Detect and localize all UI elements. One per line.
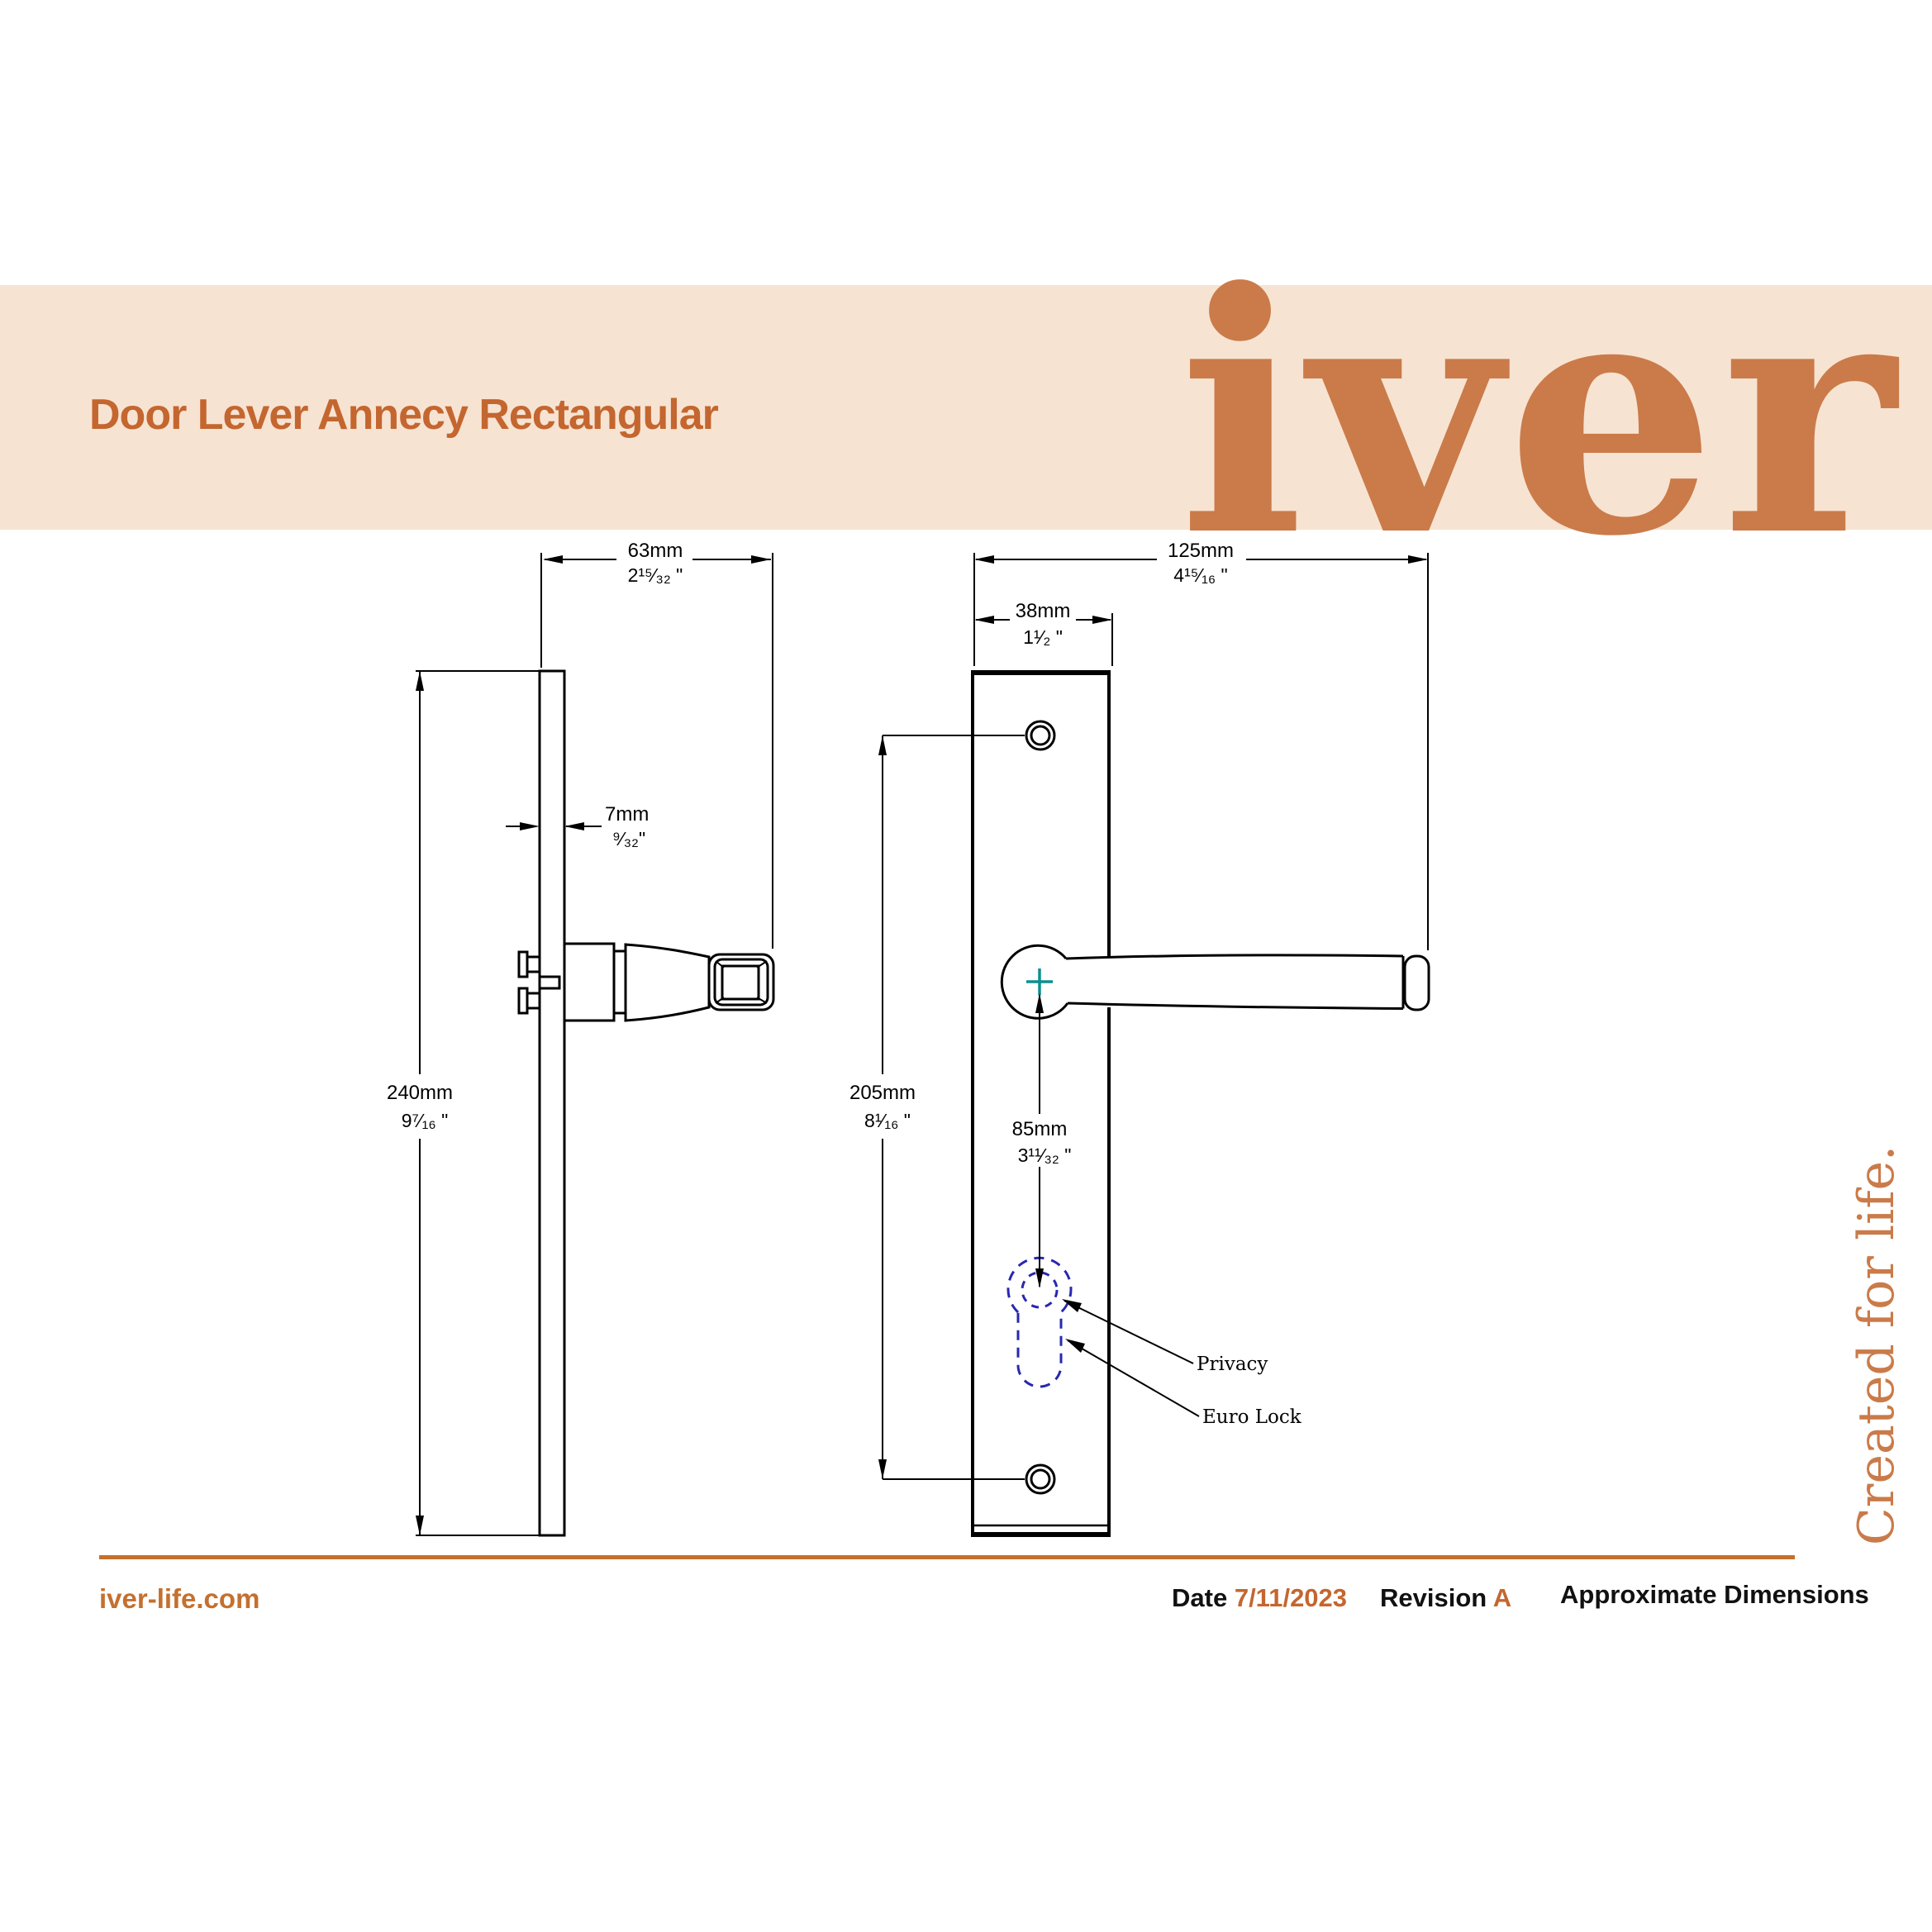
footer-revision: Revision A [1380,1583,1511,1613]
dim-205mm [878,735,1025,1479]
lever-end-cap-square [722,966,759,999]
spindle-prongs [519,952,540,1013]
dim-63mm-inch: 2¹⁵⁄₃₂ " [628,564,683,586]
lever-base-cylinder [564,944,614,1021]
dim-205mm-label: 205mm [849,1082,916,1104]
dim-125mm-label: 125mm [1168,540,1234,562]
euro-lock-label: Euro Lock [1202,1406,1302,1428]
lever-side-profile [564,944,773,1021]
footer-date: Date 7/11/2023 [1172,1583,1347,1613]
approx-dimensions-note: Approximate Dimensions [1560,1580,1869,1610]
date-value: 7/11/2023 [1235,1583,1347,1612]
lever-arm-top [1066,955,1403,959]
screw-hole-bottom [1026,1465,1054,1493]
brand-tagline-vertical: Created for life. [1848,1139,1922,1552]
dim-125mm-inch: 4¹⁵⁄₁₆ " [1173,564,1227,586]
front-plate [971,672,1111,1535]
spec-sheet-page: Door Lever Annecy Rectangular iver [0,0,1932,1932]
dim-63mm [541,553,773,949]
dim-63mm-label: 63mm [628,540,683,562]
dim-85mm [1035,993,1044,1288]
footer-rule [99,1555,1795,1559]
dim-240mm-label: 240mm [387,1082,453,1104]
dim-205mm-inch: 8¹⁄₁₆ " [864,1110,911,1131]
revision-value: A [1493,1583,1511,1612]
lever-collar [614,951,626,1013]
dim-7mm-inch: ⁹⁄₃₂" [612,828,645,849]
side-view-drawing: 63mm 2¹⁵⁄₃₂ " 7mm ⁹⁄₃₂" 240mm 9⁷⁄₁₆ [387,540,773,1535]
dim-38mm-inch: 1¹⁄₂ " [1023,626,1063,648]
screw-hole-top [1026,721,1054,749]
lever-front-profile [1002,945,1429,1018]
dim-38mm-label: 38mm [1016,600,1071,622]
privacy-leader [1062,1299,1193,1363]
date-label: Date [1172,1583,1227,1612]
euro-lock-leader [1065,1339,1199,1416]
side-plate [540,671,564,1535]
lever-arm-bottom [1068,1003,1403,1009]
lever-neck [626,945,709,1021]
dim-85mm-inch: 3¹¹⁄₃₂ " [1018,1144,1072,1166]
revision-label: Revision [1380,1583,1487,1612]
front-view-drawing: 125mm 4¹⁵⁄₁₆ " 38mm 1¹⁄₂ " 205mm 8¹⁄ [849,540,1429,1535]
dim-240mm-inch: 9⁷⁄₁₆ " [402,1110,449,1131]
lever-center-mark [1026,968,1053,995]
privacy-label: Privacy [1197,1354,1268,1375]
dim-85mm-label: 85mm [1012,1118,1068,1140]
technical-drawing: 63mm 2¹⁵⁄₃₂ " 7mm ⁹⁄₃₂" 240mm 9⁷⁄₁₆ [0,0,1932,1932]
website-link[interactable]: iver-life.com [99,1583,259,1615]
lever-arm-cap [1405,956,1429,1010]
dim-7mm-label: 7mm [605,803,649,826]
